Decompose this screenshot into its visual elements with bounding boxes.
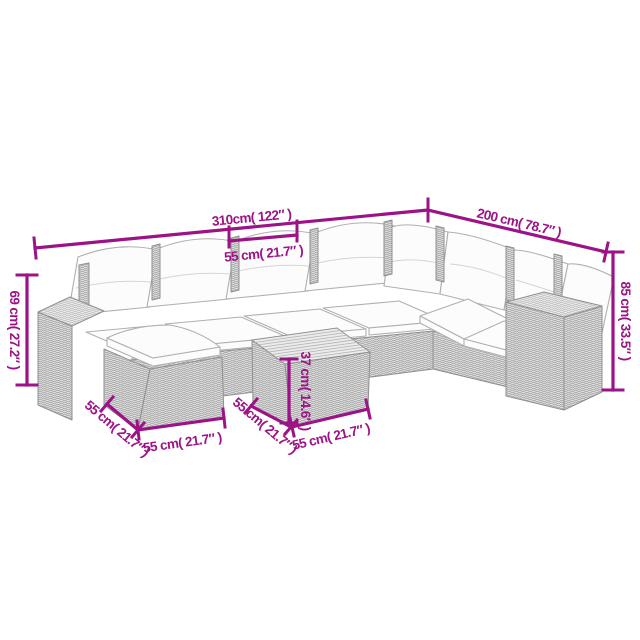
dim-table-height-label: 37 cm( 14.6″ )	[298, 351, 313, 430]
product-dimension-diagram: 310cm( 122″ ) 55 cm( 21.7″ ) 200 cm( 78.…	[0, 0, 640, 640]
right-armrest	[506, 292, 602, 410]
dim-armrest-height-label: 69 cm( 27.2″ )	[7, 290, 22, 369]
footstool	[104, 325, 224, 430]
dim-overall-height-label: 85 cm( 33.5″ )	[618, 281, 633, 360]
